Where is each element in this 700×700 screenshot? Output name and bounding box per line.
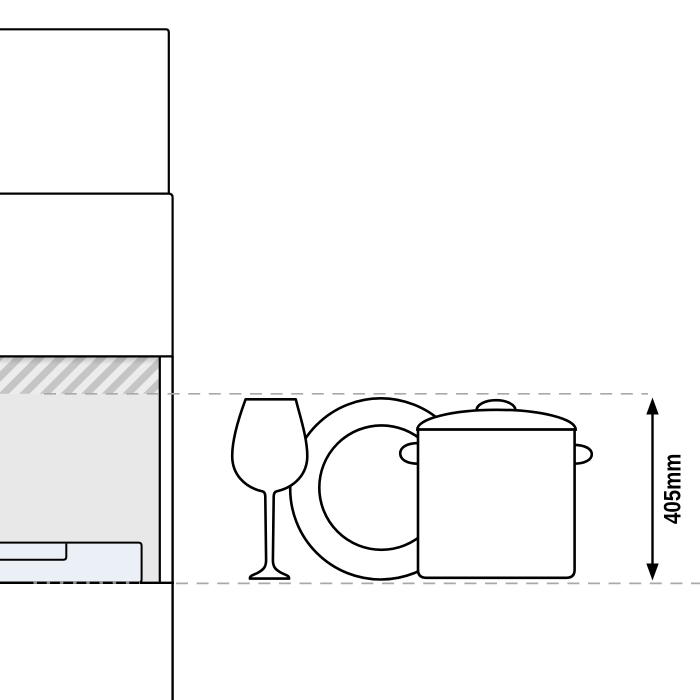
svg-text:405mm: 405mm bbox=[659, 454, 686, 524]
